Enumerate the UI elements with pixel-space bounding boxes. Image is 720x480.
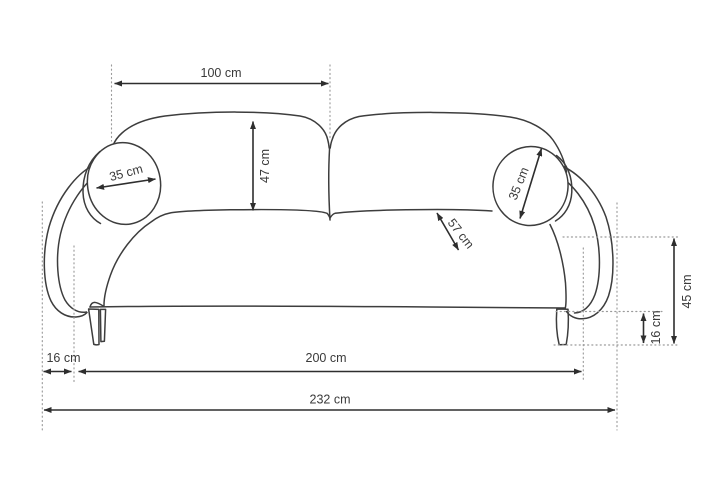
diagram-canvas: 100 cm 47 cm 35 cm 35 cm 57 cm 45 cm 16 … (0, 0, 720, 480)
leg-front-right (556, 309, 568, 345)
sofa-pillows (82, 137, 573, 229)
dim-label-leg-height: 16 cm (649, 310, 663, 344)
dim-label-back-cushion-height: 47 cm (258, 149, 272, 183)
sofa-dimension-diagram: 100 cm 47 cm 35 cm 35 cm 57 cm 45 cm 16 … (0, 0, 720, 480)
dim-label-seat-height: 45 cm (680, 274, 694, 308)
base-bottom-edge (90, 306, 565, 308)
sofa-seat-base (90, 210, 566, 308)
dim-label-back-width: 100 cm (201, 66, 242, 80)
dimension-arrows (44, 84, 675, 411)
sofa-legs (89, 309, 569, 345)
leg-front-left (89, 309, 99, 345)
armrest-left-outer (44, 166, 92, 317)
dim-label-armrest-width: 16 cm (46, 351, 80, 365)
leg-back-left (100, 309, 105, 341)
seat-line-right (330, 210, 492, 218)
guide-lines (42, 65, 679, 430)
sofa-outline (44, 112, 613, 345)
backrest-center-seam (329, 148, 330, 220)
dim-label-seat-width: 200 cm (306, 351, 347, 365)
dim-label-total-width: 232 cm (310, 392, 351, 406)
